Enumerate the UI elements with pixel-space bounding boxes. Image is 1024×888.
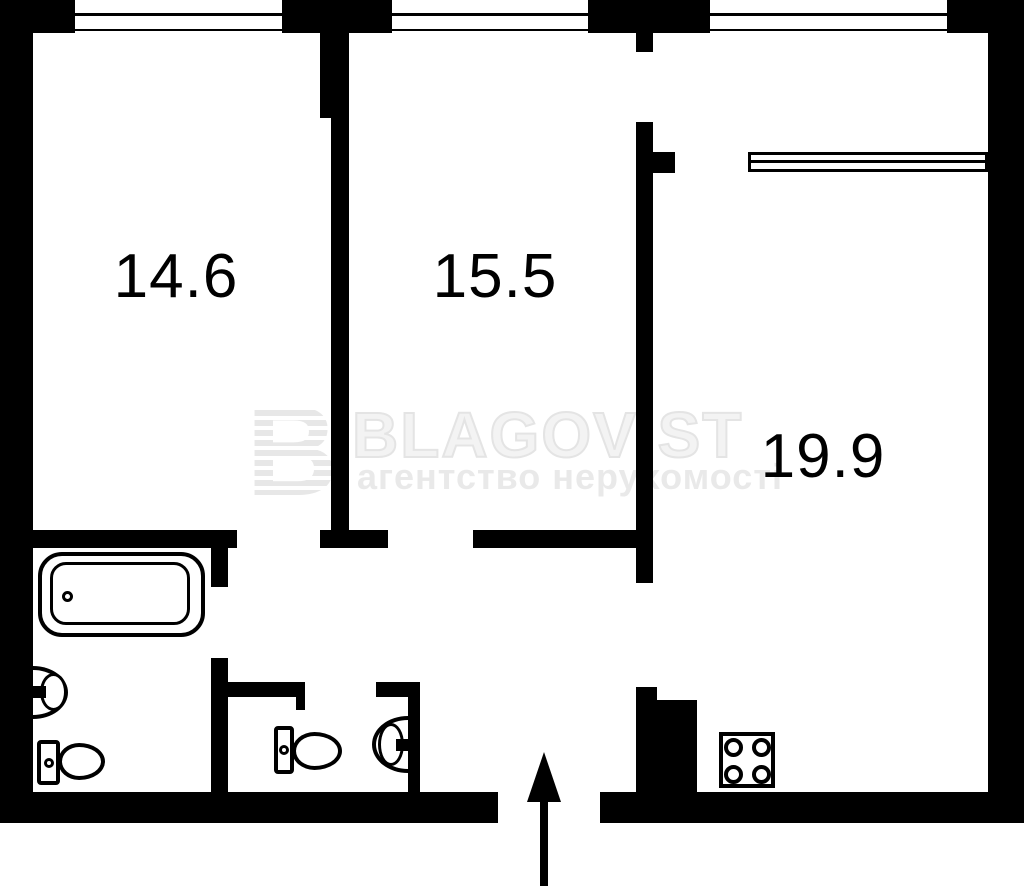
wall-wc-right xyxy=(408,682,420,792)
sink-tap-bathroom xyxy=(33,686,46,698)
wall-kitchen-block-step xyxy=(636,687,657,700)
outer-wall-top-mid1 xyxy=(282,0,392,33)
floor-plan: B BLAGOVIST агентство нерухомості xyxy=(0,0,1024,888)
entrance-arrow-shaft xyxy=(540,799,548,886)
outer-wall-bottom-left xyxy=(0,792,498,823)
toilet-button-wc xyxy=(279,745,289,755)
window-icon-partition xyxy=(748,152,988,172)
window-icon-middle-room xyxy=(392,3,588,31)
window-icon-left-room xyxy=(75,3,282,31)
wall-wc-top-left xyxy=(225,682,305,697)
wall-divider-rooms-foot xyxy=(320,530,388,548)
stove-burner xyxy=(724,738,743,757)
window-icon-kitchen xyxy=(710,3,947,31)
room-area-label-middle: 15.5 xyxy=(407,246,583,308)
outer-wall-left xyxy=(0,0,33,823)
toilet-bowl-bathroom xyxy=(58,743,105,780)
wall-bathroom-right-upper xyxy=(211,548,228,587)
agency-watermark-tagline: агентство нерухомості xyxy=(357,456,783,498)
room-area-label-left: 14.6 xyxy=(88,246,264,308)
window-pane-line xyxy=(392,13,588,16)
wall-left-room-bottom xyxy=(0,530,237,548)
wall-kitchen-divider-main xyxy=(636,122,653,583)
outer-wall-right xyxy=(988,0,1024,823)
partition-pane-line xyxy=(751,160,985,163)
wall-kitchen-divider-top-stub xyxy=(636,33,653,52)
room-area-label-kitchen: 19.9 xyxy=(735,426,911,488)
bathtub-drain xyxy=(62,591,73,602)
wall-divider-rooms-top-block xyxy=(320,33,349,118)
wall-bathroom-right-lower xyxy=(211,658,228,792)
wall-middle-room-bottom xyxy=(473,530,653,548)
stove-burner xyxy=(724,765,743,784)
toilet-button-bathroom xyxy=(44,758,54,768)
window-pane-line xyxy=(75,13,282,16)
outer-wall-bottom-right xyxy=(600,792,1024,823)
stove-burner xyxy=(752,765,771,784)
outer-wall-top-mid2 xyxy=(588,0,710,33)
entrance-arrow-icon xyxy=(527,752,561,802)
stove-burner xyxy=(752,738,771,757)
wall-kitchen-divider-side-stub xyxy=(653,152,675,173)
wall-wc-door-jamb xyxy=(296,697,305,710)
wall-kitchen-block xyxy=(636,700,697,792)
window-pane-line xyxy=(710,13,947,16)
sink-tap-wc xyxy=(396,739,408,751)
toilet-bowl-wc xyxy=(292,732,342,770)
wall-divider-rooms-main xyxy=(331,118,349,532)
